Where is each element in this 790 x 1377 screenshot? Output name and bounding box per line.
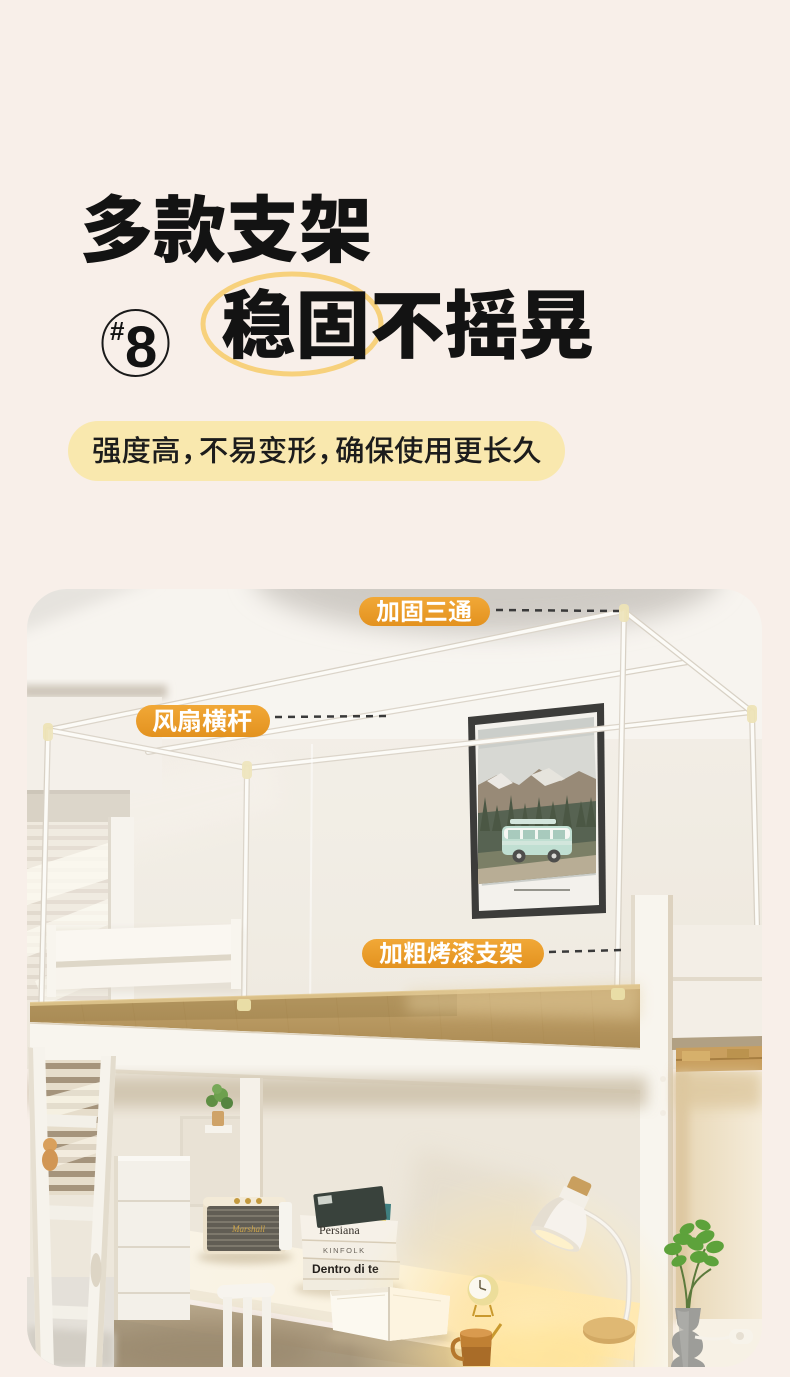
svg-text:Persiana: Persiana bbox=[319, 1223, 360, 1237]
svg-text:Marshall: Marshall bbox=[231, 1224, 266, 1234]
svg-text:KINFOLK: KINFOLK bbox=[323, 1246, 366, 1255]
svg-text:8: 8 bbox=[125, 315, 157, 380]
svg-text:#: # bbox=[110, 316, 125, 346]
